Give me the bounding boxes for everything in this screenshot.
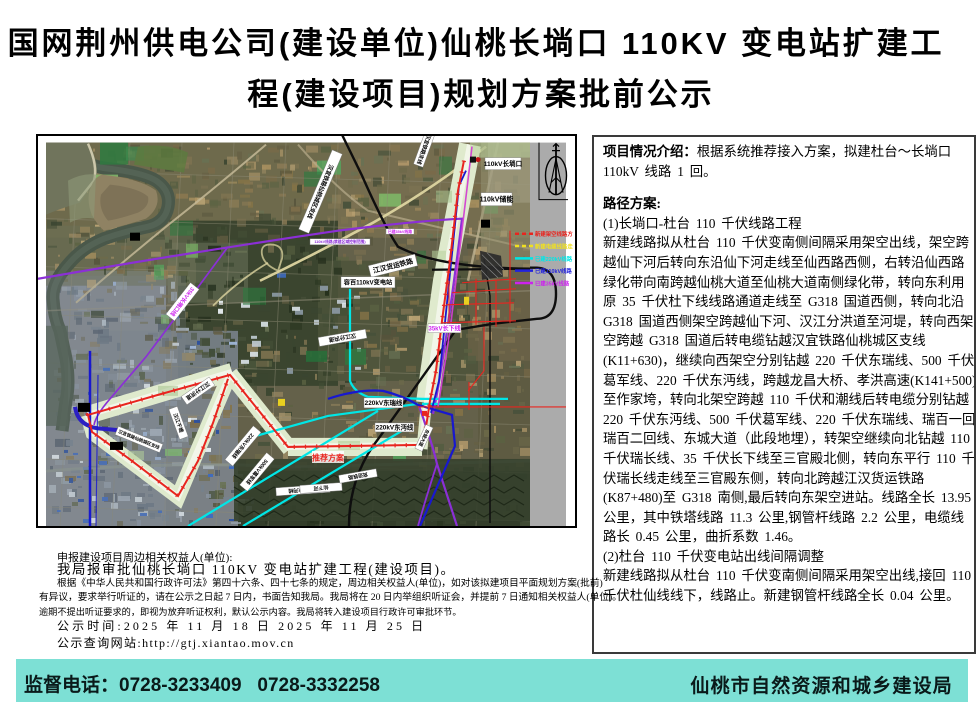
svg-text:110kV储能: 110kV储能 — [480, 195, 514, 204]
svg-text:新建电缆线路走: 新建电缆线路走 — [535, 243, 573, 251]
svg-text:已建35kV线路: 已建35kV线路 — [535, 279, 570, 287]
svg-text:已建220kV线路: 已建220kV线路 — [535, 255, 573, 263]
svg-text:110kV线路(禁建区域控制范围): 110kV线路(禁建区域控制范围) — [314, 239, 366, 244]
svg-text:220kV东沔线: 220kV东沔线 — [376, 423, 414, 432]
svg-text:仙下河: 仙下河 — [313, 484, 328, 492]
svg-text:110kV长埫口: 110kV长埫口 — [484, 159, 522, 168]
svg-text:已建35kV线路: 已建35kV线路 — [388, 229, 412, 234]
svg-text:推荐方案: 推荐方案 — [312, 452, 345, 462]
svg-text:220kV东瑞线: 220kV东瑞线 — [365, 398, 403, 407]
svg-text:容百110kV变电站: 容百110kV变电站 — [343, 278, 393, 286]
svg-text:已建110kV线路: 已建110kV线路 — [535, 267, 572, 275]
svg-text:新建架空线路方: 新建架空线路方 — [535, 230, 573, 238]
svg-text:35kV长下线: 35kV长下线 — [429, 324, 461, 332]
